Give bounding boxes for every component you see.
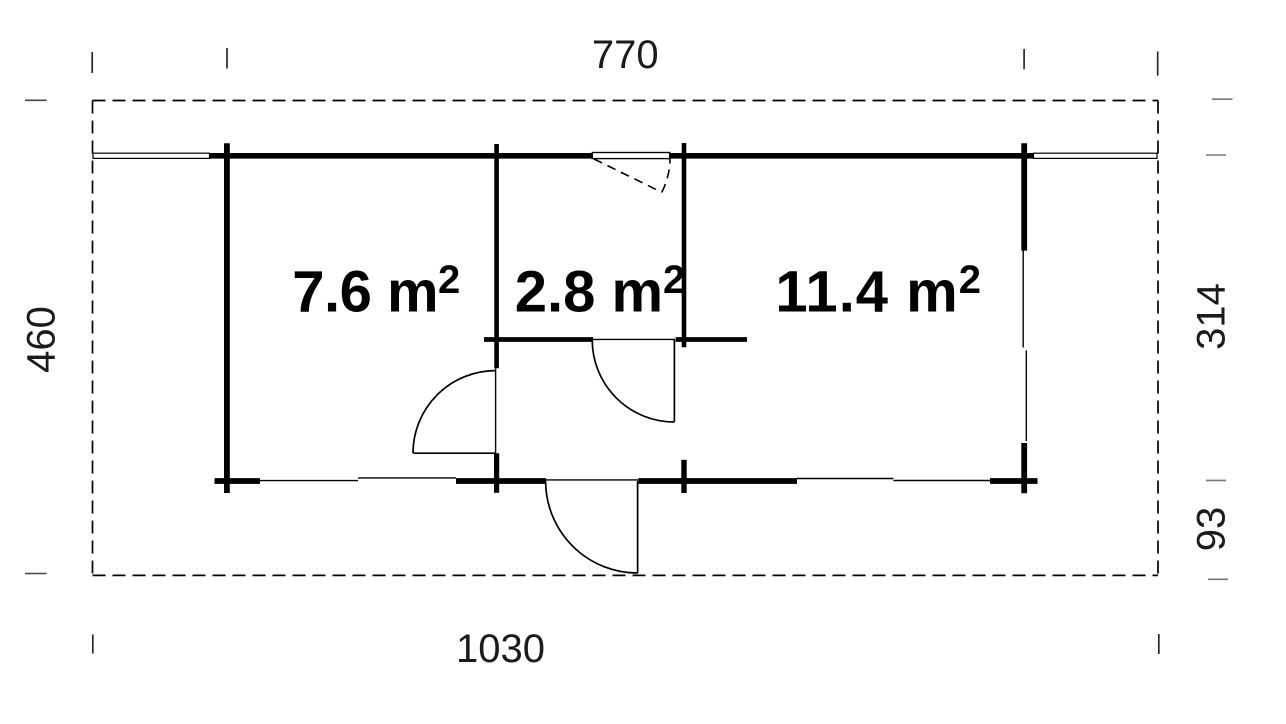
svg-text:7.6 m2: 7.6 m2 [292,258,460,325]
svg-text:11.4 m2: 11.4 m2 [775,258,982,325]
svg-text:2.8 m2: 2.8 m2 [515,258,686,325]
svg-text:314: 314 [1190,283,1234,350]
svg-text:93: 93 [1190,507,1234,552]
svg-text:1030: 1030 [456,627,545,671]
svg-text:770: 770 [592,33,659,77]
svg-text:460: 460 [20,306,64,373]
